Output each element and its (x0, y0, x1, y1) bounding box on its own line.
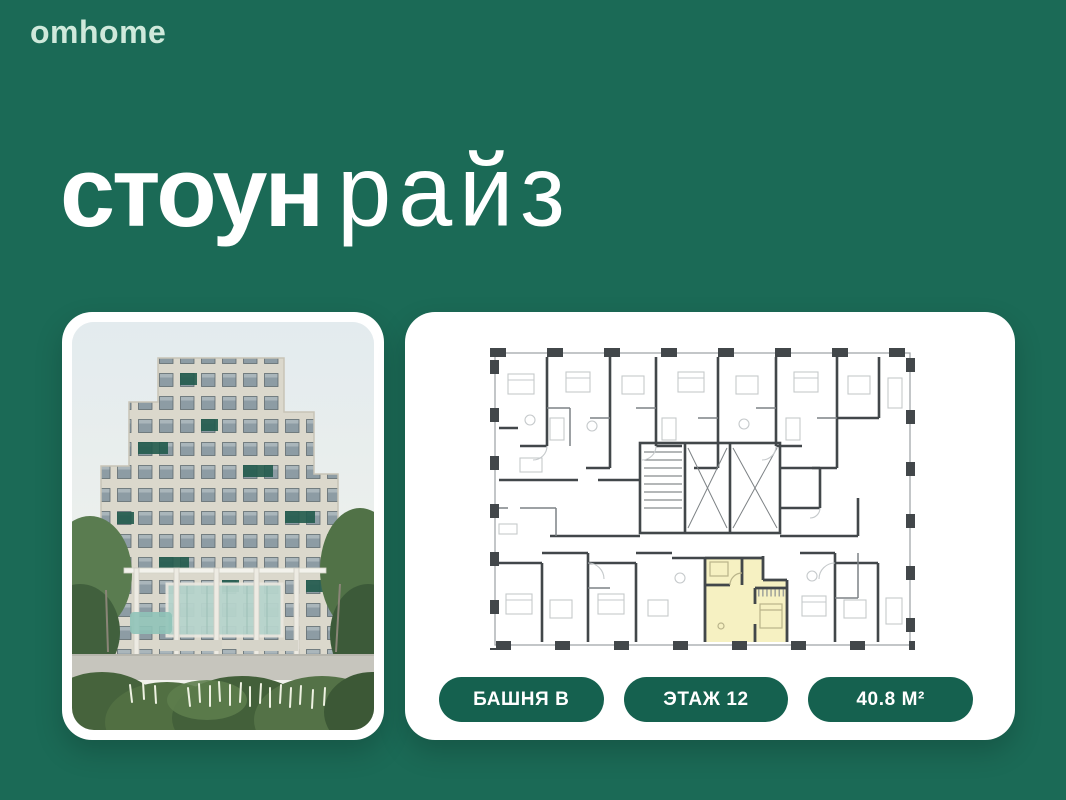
floor-plan (490, 348, 915, 650)
omhome-logo: omhome (30, 14, 166, 51)
building-photo (72, 322, 374, 730)
building-photo-card (62, 312, 384, 740)
project-title-bold: стоун (60, 142, 321, 241)
floor-plan-drawing (490, 348, 915, 650)
foreground-bushes (72, 672, 374, 730)
floor-badge: ЭТАЖ 12 (624, 677, 789, 722)
tower-badge: БАШНЯ В (439, 677, 604, 722)
project-title-light: райз (337, 140, 572, 241)
project-title: стоун райз (60, 142, 572, 241)
area-badge: 40.8 М² (808, 677, 973, 722)
info-badges: БАШНЯ В ЭТАЖ 12 40.8 М² (439, 677, 973, 722)
building-photo-render (72, 322, 374, 730)
floor-plan-card: БАШНЯ В ЭТАЖ 12 40.8 М² (405, 312, 1015, 740)
